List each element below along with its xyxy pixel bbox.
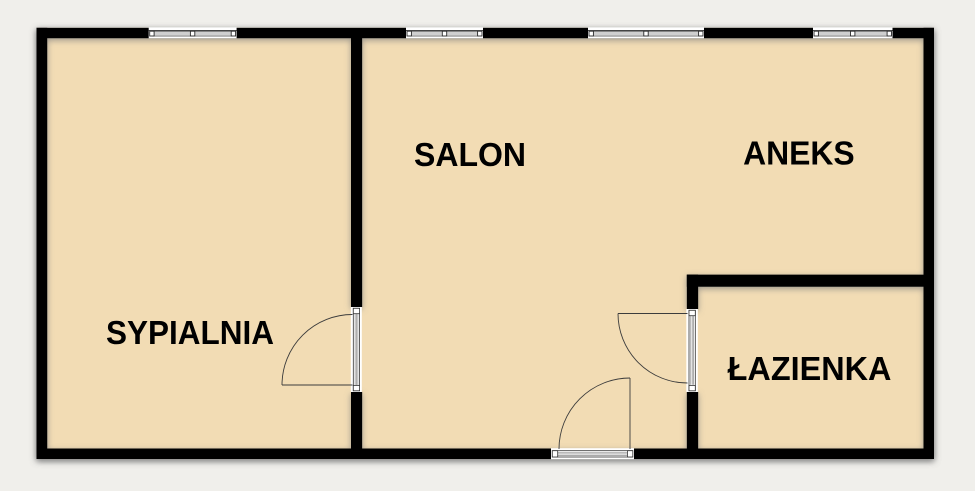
svg-text:ANEKS: ANEKS xyxy=(743,134,855,172)
svg-text:SALON: SALON xyxy=(414,135,526,173)
svg-text:SYPIALNIA: SYPIALNIA xyxy=(106,314,274,351)
svg-text:ŁAZIENKA: ŁAZIENKA xyxy=(728,350,892,388)
